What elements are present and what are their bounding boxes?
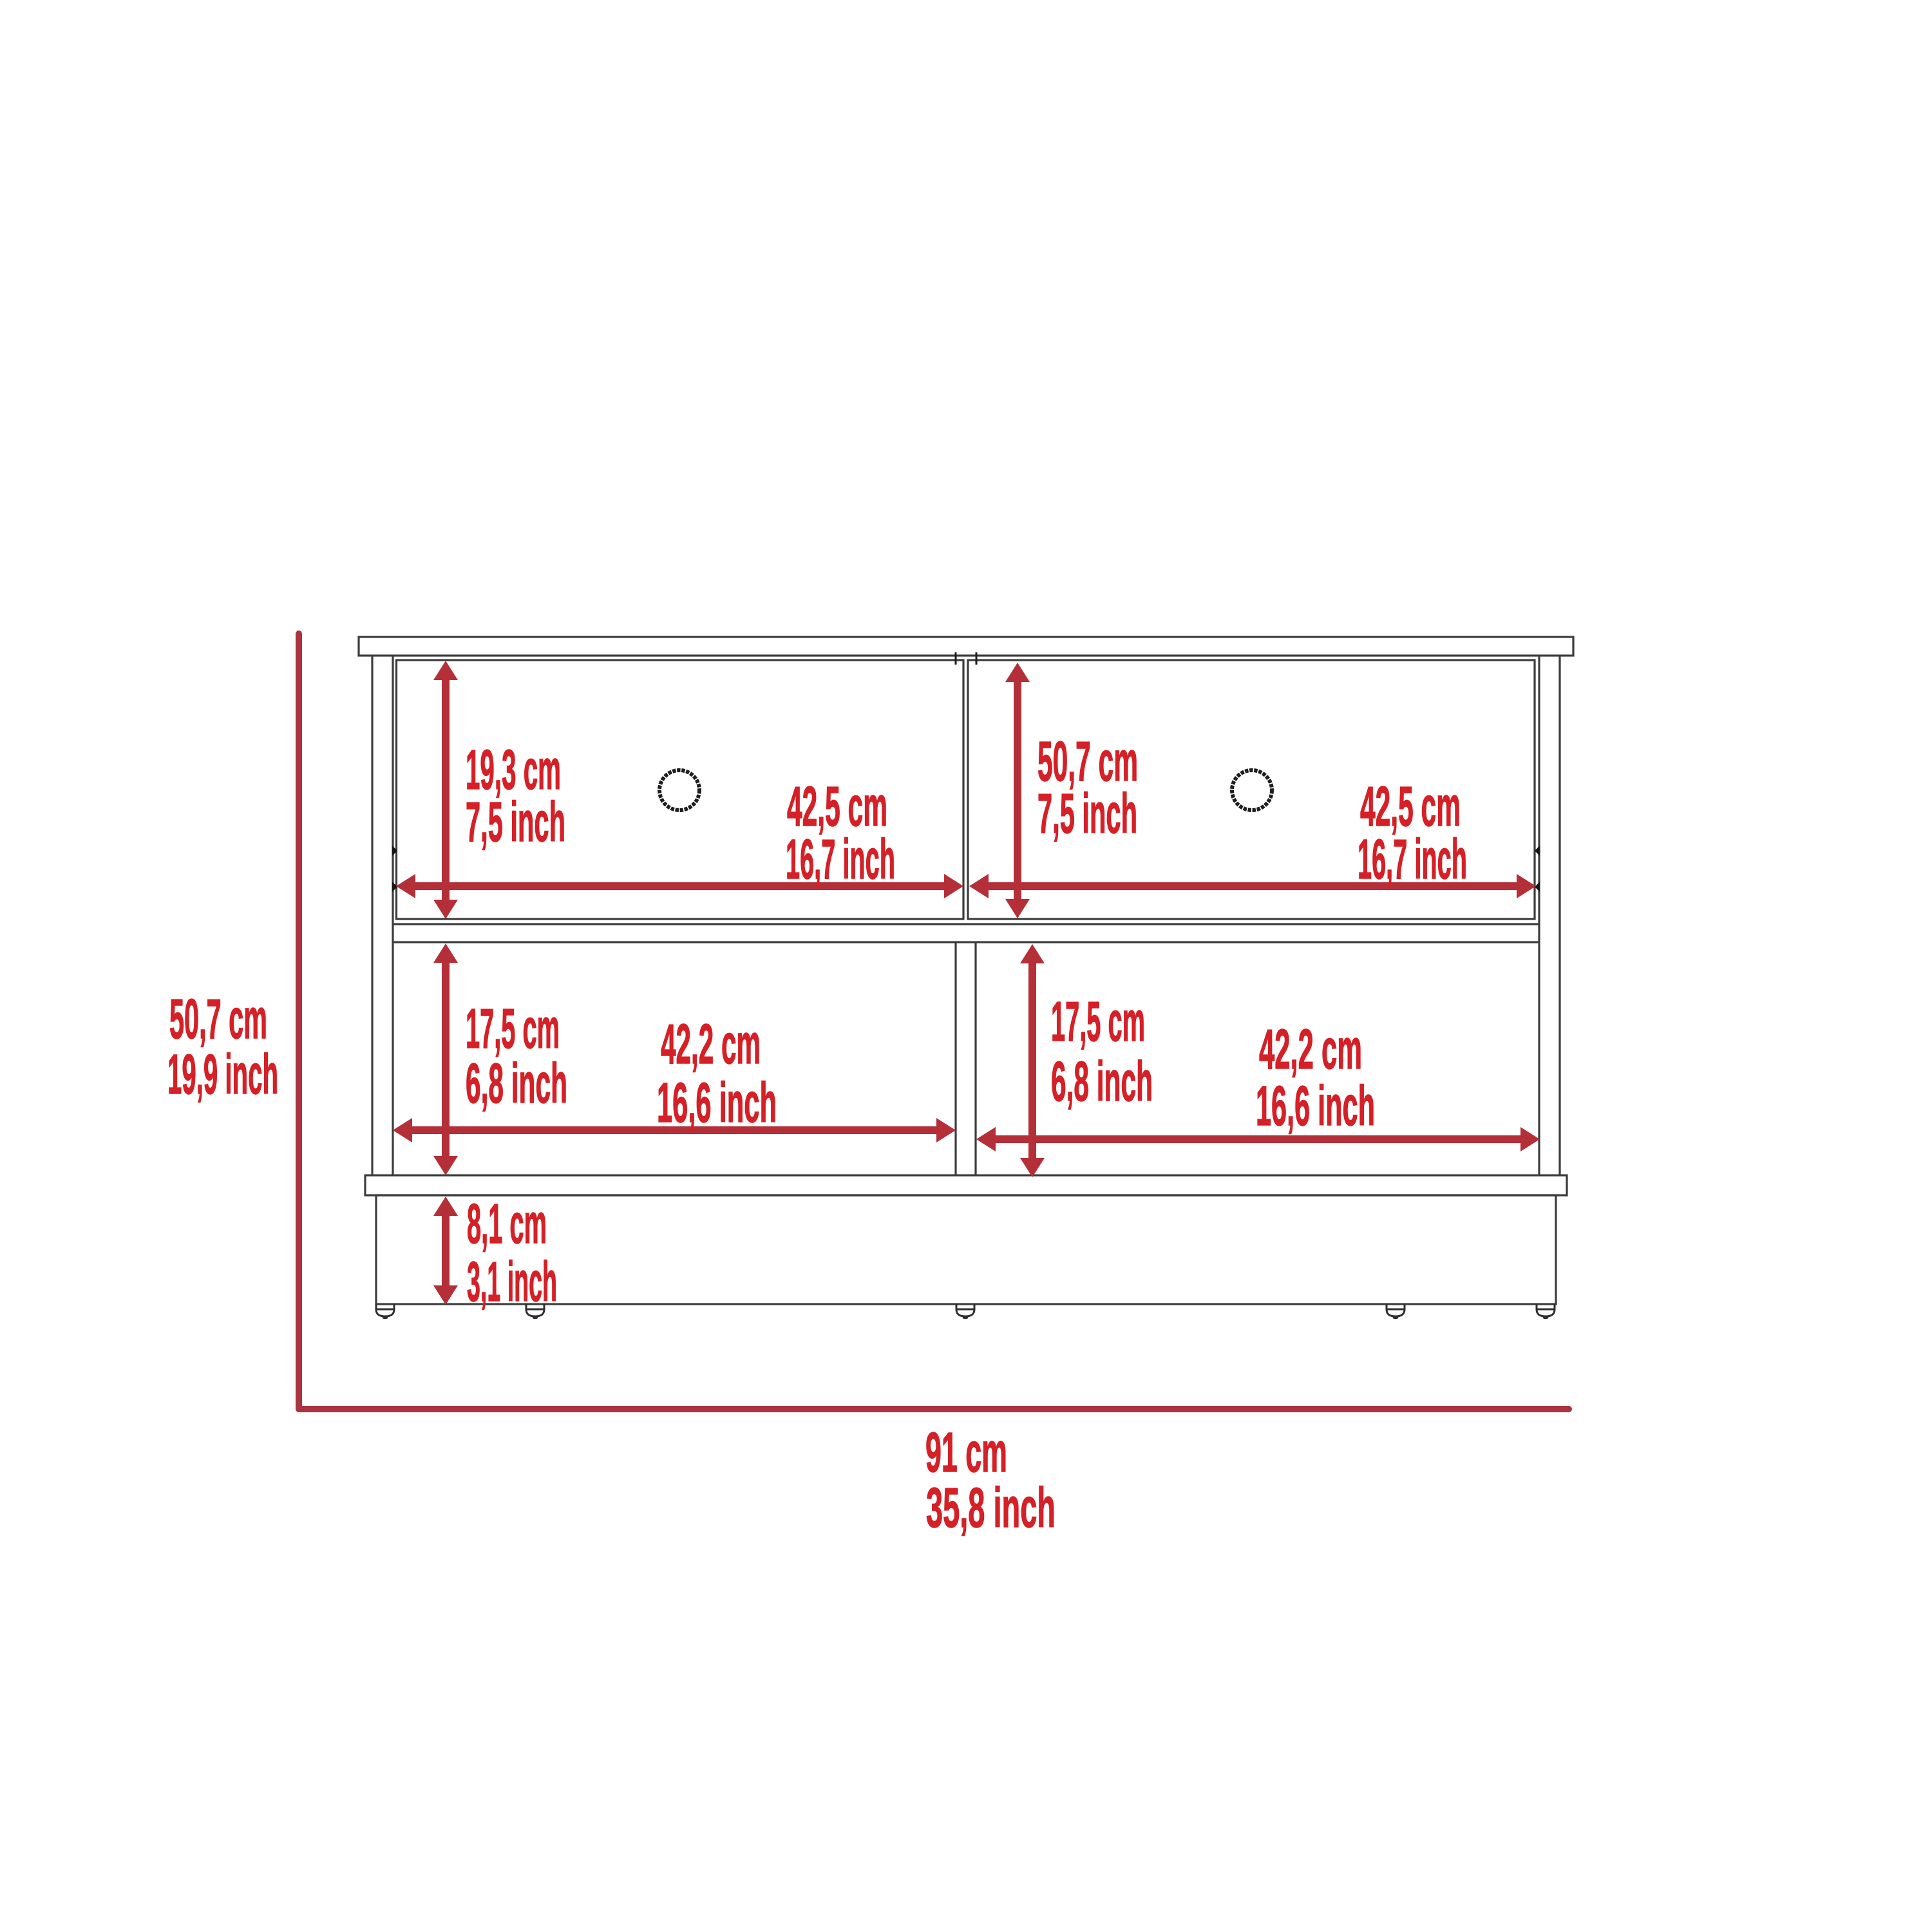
svg-text:7,5 inch: 7,5 inch <box>1037 782 1137 845</box>
svg-text:16,6 inch: 16,6 inch <box>1256 1075 1375 1137</box>
svg-text:16,7 inch: 16,7 inch <box>1358 828 1467 891</box>
svg-text:3,1 inch: 3,1 inch <box>467 1251 557 1313</box>
svg-text:50,7 cm: 50,7 cm <box>169 988 267 1050</box>
svg-text:7,5 inch: 7,5 inch <box>466 791 565 853</box>
svg-text:19,9 inch: 19,9 inch <box>167 1043 278 1106</box>
svg-text:17,5 cm: 17,5 cm <box>1051 990 1145 1053</box>
svg-text:42,2 cm: 42,2 cm <box>1259 1018 1362 1081</box>
svg-text:17,5 cm: 17,5 cm <box>466 998 560 1060</box>
svg-text:35,8 inch: 35,8 inch <box>926 1477 1056 1539</box>
svg-text:8,1 cm: 8,1 cm <box>467 1193 547 1255</box>
svg-text:6,8 inch: 6,8 inch <box>466 1052 567 1115</box>
svg-text:91 cm: 91 cm <box>925 1421 1007 1484</box>
svg-text:16,7 inch: 16,7 inch <box>786 828 895 891</box>
svg-text:6,8 inch: 6,8 inch <box>1051 1050 1153 1113</box>
svg-text:16,6 inch: 16,6 inch <box>657 1072 777 1134</box>
svg-text:42,2 cm: 42,2 cm <box>661 1013 761 1075</box>
